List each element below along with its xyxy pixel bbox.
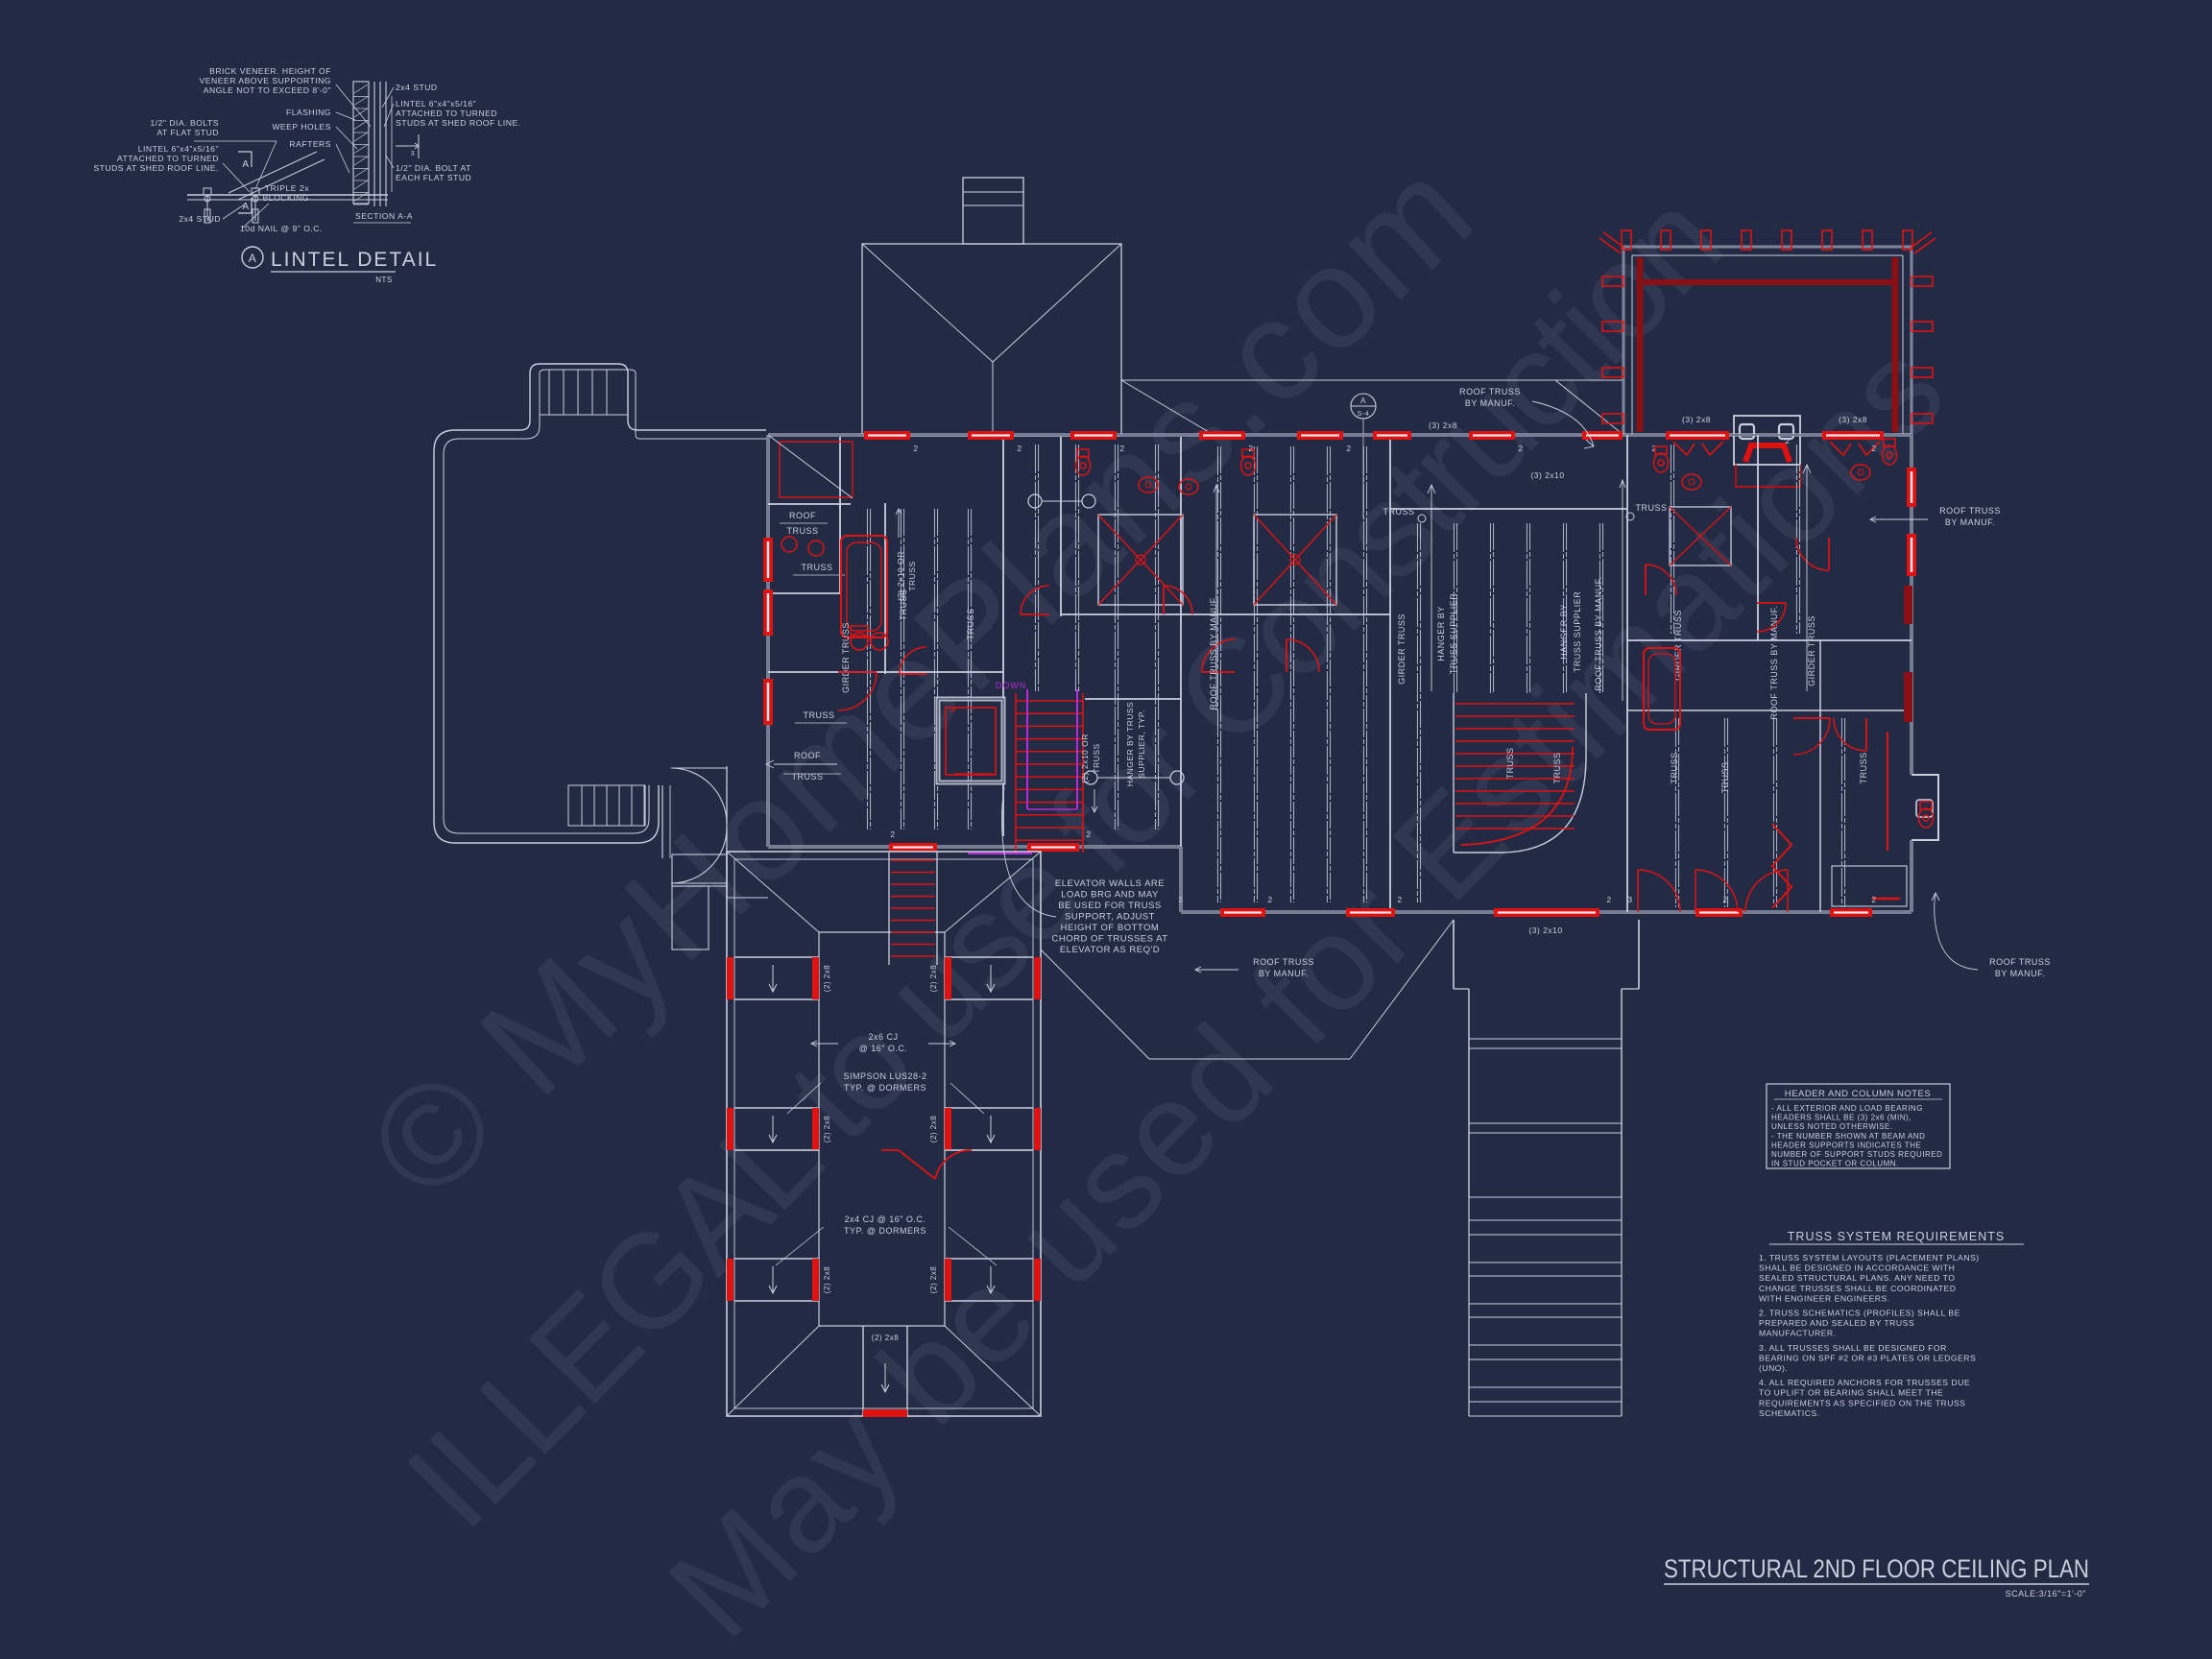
svg-text:TRUSS: TRUSS	[1092, 743, 1101, 773]
svg-text:SHALL BE DESIGNED IN ACCORDANC: SHALL BE DESIGNED IN ACCORDANCE WITH	[1759, 1263, 1955, 1273]
svg-text:(3) 2x10: (3) 2x10	[1530, 470, 1564, 480]
svg-text:TRUSS: TRUSS	[1552, 752, 1562, 783]
svg-text:(3) 2x8: (3) 2x8	[1682, 415, 1711, 424]
svg-text:HEIGHT OF BOTTOM: HEIGHT OF BOTTOM	[1061, 923, 1160, 933]
svg-text:2: 2	[1346, 444, 1351, 453]
svg-text:2: 2	[1871, 895, 1876, 904]
svg-text:2x6 CJ: 2x6 CJ	[868, 1032, 898, 1042]
svg-text:(2) 2x8: (2) 2x8	[823, 1266, 831, 1293]
svg-text:TRUSS: TRUSS	[1505, 747, 1515, 779]
svg-text:VENEER ABOVE SUPPORTING: VENEER ABOVE SUPPORTING	[200, 76, 331, 85]
svg-text:BY MANUF.: BY MANUF.	[1995, 969, 2045, 978]
svg-text:ROOF TRUSS: ROOF TRUSS	[1459, 387, 1521, 397]
svg-text:TYP. @ DORMERS: TYP. @ DORMERS	[844, 1226, 926, 1236]
svg-text:ANGLE NOT TO EXCEED 8'-0": ANGLE NOT TO EXCEED 8'-0"	[204, 85, 331, 95]
svg-text:ATTACHED TO TURNED: ATTACHED TO TURNED	[396, 108, 497, 118]
svg-text:TRUSS: TRUSS	[1635, 503, 1667, 513]
svg-text:IN STUD POCKET OR COLUMN.: IN STUD POCKET OR COLUMN.	[1771, 1160, 1899, 1168]
svg-text:1/2" DIA. BOLTS: 1/2" DIA. BOLTS	[150, 118, 219, 128]
svg-text:(UNO).: (UNO).	[1759, 1363, 1788, 1373]
svg-text:2: 2	[1267, 895, 1272, 904]
svg-text:SUPPORT, ADJUST: SUPPORT, ADJUST	[1065, 912, 1155, 923]
svg-text:PREPARED AND SEALED BY TRUSS: PREPARED AND SEALED BY TRUSS	[1759, 1318, 1914, 1328]
svg-text:ELEVATOR WALLS ARE: ELEVATOR WALLS ARE	[1055, 878, 1165, 889]
svg-text:GIRDER TRUSS: GIRDER TRUSS	[841, 622, 851, 693]
svg-text:(3) 2x10: (3) 2x10	[1528, 926, 1562, 935]
svg-text:TRUSS: TRUSS	[786, 526, 818, 536]
svg-text:(2) 2x8: (2) 2x8	[929, 1116, 938, 1142]
svg-text:2x4 STUD: 2x4 STUD	[179, 214, 221, 224]
svg-text:2. TRUSS SCHEMATICS (PROFILES): 2. TRUSS SCHEMATICS (PROFILES) SHALL BE	[1759, 1309, 1960, 1318]
svg-text:BEARING ON SPF #2 OR #3 PLATES: BEARING ON SPF #2 OR #3 PLATES OR LEDGER…	[1759, 1353, 1976, 1362]
svg-text:(2) 2x8: (2) 2x8	[929, 1266, 938, 1293]
svg-text:2x4 CJ @ 16" O.C.: 2x4 CJ @ 16" O.C.	[845, 1214, 926, 1224]
svg-text:2: 2	[1086, 829, 1091, 839]
svg-text:A: A	[242, 202, 249, 212]
svg-text:CHANGE TRUSSES SHALL BE COORDI: CHANGE TRUSSES SHALL BE COORDINATED	[1759, 1284, 1957, 1293]
svg-text:AT FLAT STUD: AT FLAT STUD	[156, 128, 219, 137]
svg-text:(3) 2x8: (3) 2x8	[1839, 415, 1867, 424]
svg-text:TRUSS: TRUSS	[801, 563, 832, 572]
svg-text:TRUSS: TRUSS	[1720, 761, 1730, 793]
svg-text:- ALL EXTERIOR AND LOAD BEARIN: - ALL EXTERIOR AND LOAD BEARING	[1771, 1104, 1923, 1113]
svg-text:HANGER BY: HANGER BY	[1559, 604, 1569, 660]
svg-text:NUMBER OF SUPPORT STUDS REQUIR: NUMBER OF SUPPORT STUDS REQUIRED	[1771, 1150, 1942, 1159]
svg-text:BY MANUF.: BY MANUF.	[1945, 517, 1995, 527]
svg-text:HANGER BY: HANGER BY	[1436, 606, 1446, 661]
svg-text:BRICK VENEER. HEIGHT OF: BRICK VENEER. HEIGHT OF	[209, 66, 331, 76]
svg-text:ROOF TRUSS BY MANUF.: ROOF TRUSS BY MANUF.	[1209, 595, 1218, 709]
svg-text:TRUSS SYSTEM REQUIREMENTS: TRUSS SYSTEM REQUIREMENTS	[1788, 1230, 2005, 1243]
svg-text:A: A	[1360, 397, 1366, 405]
svg-text:(2) 2x10 OR: (2) 2x10 OR	[1080, 733, 1090, 783]
svg-text:HEADERS SHALL BE (3) 2x6 (MIN): HEADERS SHALL BE (3) 2x6 (MIN),	[1771, 1114, 1911, 1122]
svg-text:2: 2	[1722, 895, 1727, 904]
svg-text:SECTION A-A: SECTION A-A	[355, 211, 413, 221]
svg-text:- THE NUMBER SHOWN AT BEAM AND: - THE NUMBER SHOWN AT BEAM AND	[1771, 1132, 1925, 1141]
svg-text:ROOF: ROOF	[794, 751, 821, 760]
svg-text:2: 2	[1785, 436, 1790, 445]
svg-text:SIMPSON LUS28-2: SIMPSON LUS28-2	[843, 1071, 926, 1081]
svg-text:A: A	[242, 159, 249, 170]
svg-text:ROOF TRUSS: ROOF TRUSS	[1989, 957, 2051, 967]
svg-text:TRIPLE 2x: TRIPLE 2x	[265, 183, 309, 193]
svg-text:2: 2	[913, 444, 918, 453]
svg-text:STUDS AT SHED ROOF LINE.: STUDS AT SHED ROOF LINE.	[396, 118, 521, 128]
svg-text:2: 2	[890, 829, 895, 839]
svg-text:SCALE:3/16"=1'-0": SCALE:3/16"=1'-0"	[2006, 1589, 2086, 1599]
svg-text:MANUFACTURER.: MANUFACTURER.	[1759, 1329, 1837, 1338]
svg-text:BE USED FOR TRUSS: BE USED FOR TRUSS	[1058, 901, 1162, 911]
svg-text:TO UPLIFT OR BEARING SHALL MEE: TO UPLIFT OR BEARING SHALL MEET THE	[1759, 1388, 1943, 1398]
svg-text:TRUSS: TRUSS	[899, 589, 908, 620]
svg-text:GIRDER TRUSS: GIRDER TRUSS	[1397, 613, 1407, 685]
svg-text:UNLESS NOTED OTHERWISE.: UNLESS NOTED OTHERWISE.	[1771, 1122, 1892, 1131]
svg-text:TYP. @ DORMERS: TYP. @ DORMERS	[844, 1083, 926, 1093]
svg-text:(2) 2x8: (2) 2x8	[872, 1334, 899, 1342]
svg-text:2x4 STUD: 2x4 STUD	[396, 83, 438, 92]
svg-text:DOWN: DOWN	[996, 681, 1027, 690]
svg-text:REQUIREMENTS AS SPECIFIED ON T: REQUIREMENTS AS SPECIFIED ON THE TRUSS	[1759, 1398, 1965, 1407]
svg-text:TRUSS: TRUSS	[803, 710, 834, 720]
svg-text:TRUSS SUPPLIER: TRUSS SUPPLIER	[1449, 593, 1458, 675]
svg-text:2: 2	[1871, 444, 1876, 453]
svg-text:HEADER AND COLUMN NOTES: HEADER AND COLUMN NOTES	[1785, 1089, 1931, 1099]
svg-text:LOAD BRG AND MAY: LOAD BRG AND MAY	[1061, 890, 1159, 901]
svg-text:RAFTERS: RAFTERS	[289, 139, 331, 149]
svg-text:HEADER SUPPORTS INDICATES THE: HEADER SUPPORTS INDICATES THE	[1771, 1141, 1921, 1149]
svg-text:LINTEL DETAIL: LINTEL DETAIL	[271, 249, 438, 271]
svg-text:(3) 2x8: (3) 2x8	[1429, 421, 1457, 430]
svg-text:LINTEL 6"x4"x5/16": LINTEL 6"x4"x5/16"	[396, 99, 476, 108]
svg-text:ROOF TRUSS: ROOF TRUSS	[1253, 957, 1314, 967]
svg-text:@ 16" O.C.: @ 16" O.C.	[859, 1044, 908, 1053]
svg-text:2: 2	[1518, 444, 1523, 453]
svg-text:2: 2	[1397, 895, 1402, 904]
svg-text:NTS: NTS	[375, 276, 393, 284]
svg-text:TRUSS SUPPLIER: TRUSS SUPPLIER	[1573, 591, 1582, 673]
svg-text:4. ALL REQUIRED ANCHORS FOR TR: 4. ALL REQUIRED ANCHORS FOR TRUSSES DUE	[1759, 1378, 1970, 1387]
svg-text:1/2" DIA. BOLT AT: 1/2" DIA. BOLT AT	[396, 163, 471, 173]
svg-text:ROOF: ROOF	[789, 511, 816, 520]
svg-text:1. TRUSS SYSTEM LAYOUTS (PLACE: 1. TRUSS SYSTEM LAYOUTS (PLACEMENT PLANS…	[1759, 1253, 1980, 1262]
svg-text:(2) 2x8: (2) 2x8	[823, 1116, 831, 1142]
svg-text:ELEVATOR AS REQ'D: ELEVATOR AS REQ'D	[1060, 945, 1160, 955]
svg-text:2: 2	[1651, 444, 1656, 453]
svg-text:2: 2	[1119, 444, 1124, 453]
svg-text:TRUSS: TRUSS	[907, 561, 917, 590]
svg-text:TRUSS: TRUSS	[966, 608, 975, 639]
svg-text:3: 3	[411, 151, 415, 157]
svg-text:TRUSS: TRUSS	[1670, 752, 1679, 783]
svg-text:3: 3	[1627, 895, 1632, 904]
svg-text:3. ALL TRUSSES SHALL BE DESIGN: 3. ALL TRUSSES SHALL BE DESIGNED FOR	[1759, 1343, 1947, 1353]
svg-text:BLOCKING: BLOCKING	[263, 193, 309, 203]
svg-text:3: 3	[1178, 895, 1183, 904]
svg-text:(2) 2x8: (2) 2x8	[929, 965, 938, 992]
svg-text:WITH ENGINEER ENGINEERS.: WITH ENGINEER ENGINEERS.	[1759, 1293, 1890, 1303]
svg-text:(2) 2x8: (2) 2x8	[823, 965, 831, 992]
svg-text:ROOF TRUSS: ROOF TRUSS	[1939, 506, 2001, 516]
svg-text:BY MANUF.: BY MANUF.	[1259, 969, 1309, 978]
svg-text:BY MANUF.: BY MANUF.	[1465, 398, 1515, 408]
svg-text:A: A	[249, 252, 257, 265]
svg-text:EACH FLAT STUD: EACH FLAT STUD	[396, 173, 471, 182]
svg-text:TRUSS: TRUSS	[1382, 507, 1414, 517]
svg-text:FLASHING: FLASHING	[286, 108, 331, 117]
svg-text:2: 2	[1017, 444, 1022, 453]
svg-text:CHORD OF TRUSSES AT: CHORD OF TRUSSES AT	[1051, 934, 1167, 945]
svg-text:S-4: S-4	[1358, 411, 1369, 418]
svg-text:SUPPLIER, TYP.: SUPPLIER, TYP.	[1137, 709, 1146, 778]
svg-text:GIRDER TRUSS: GIRDER TRUSS	[1807, 615, 1816, 686]
svg-text:2: 2	[1248, 444, 1253, 453]
svg-text:SCHEMATICS.: SCHEMATICS.	[1759, 1408, 1820, 1418]
svg-text:ATTACHED TO TURNED: ATTACHED TO TURNED	[117, 154, 219, 163]
svg-text:TRUSS: TRUSS	[1859, 752, 1868, 783]
svg-text:2: 2	[1606, 895, 1611, 904]
svg-text:ROOF TRUSS BY MANUF.: ROOF TRUSS BY MANUF.	[1594, 576, 1603, 690]
svg-text:HANGER BY TRUSS: HANGER BY TRUSS	[1125, 702, 1135, 786]
svg-text:STRUCTURAL 2ND FLOOR CEILING P: STRUCTURAL 2ND FLOOR CEILING PLAN	[1664, 1554, 2089, 1583]
svg-text:10d NAIL @ 9" O.C.: 10d NAIL @ 9" O.C.	[240, 224, 323, 233]
svg-text:WEEP HOLES: WEEP HOLES	[272, 122, 331, 132]
svg-text:TRUSS: TRUSS	[791, 772, 823, 781]
svg-text:SEALED STRUCTURAL PLANS. ANY N: SEALED STRUCTURAL PLANS. ANY NEED TO	[1759, 1273, 1955, 1283]
svg-text:LINTEL 6"x4"x5/16": LINTEL 6"x4"x5/16"	[138, 144, 219, 154]
svg-text:STUDS AT SHED ROOF LINE.: STUDS AT SHED ROOF LINE.	[93, 163, 219, 173]
